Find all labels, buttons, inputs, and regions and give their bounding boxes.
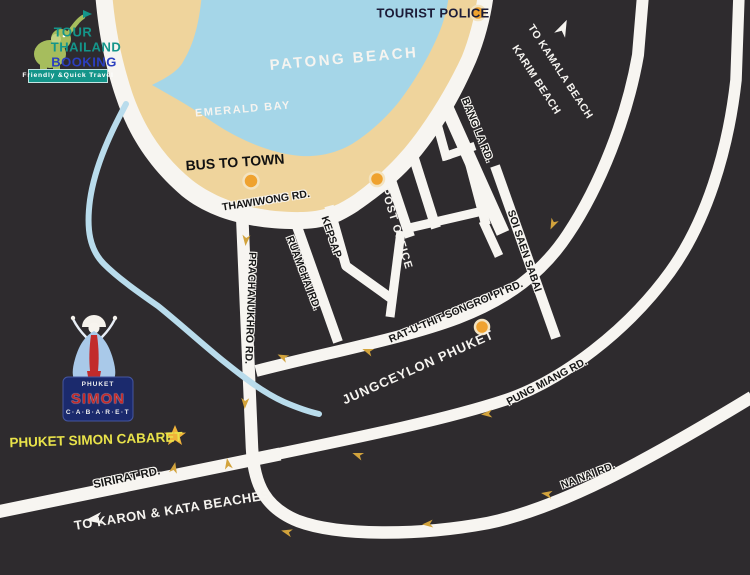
post-office-marker xyxy=(370,172,384,186)
brand-line2[interactable]: THAILAND xyxy=(51,41,121,54)
brand-tagline: Friendly &Quick Travel xyxy=(22,73,113,80)
patong-beach-map: TOURIST POLICE PATONG BEACH EMERALD BAY … xyxy=(0,0,750,575)
bus-to-town-marker xyxy=(244,174,259,189)
tourist-police-label: TOURIST POLICE xyxy=(376,7,489,20)
cabaret-banner-letters: C·A·B·A·R·E·T xyxy=(66,410,130,417)
map-canvas xyxy=(0,0,750,575)
brand-line1[interactable]: TOUR xyxy=(54,26,93,39)
cabaret-sash xyxy=(89,335,98,371)
brand-line3[interactable]: BOOKING xyxy=(51,56,117,69)
cabaret-banner-top: PHUKET xyxy=(82,382,115,389)
brand-tagline-banner: Friendly &Quick Travel xyxy=(28,69,108,83)
cabaret-banner-name: SIMON xyxy=(71,392,125,407)
